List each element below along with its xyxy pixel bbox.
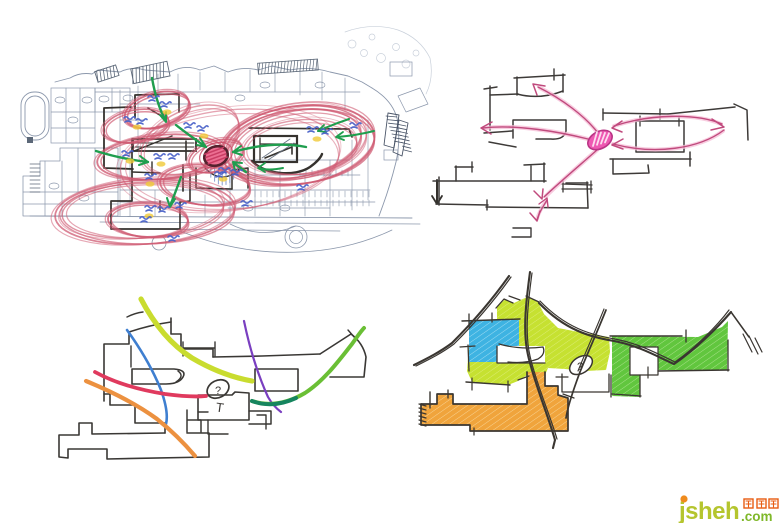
svg-text:.com: .com (741, 509, 773, 523)
svg-text:jsheh: jsheh (678, 498, 739, 523)
